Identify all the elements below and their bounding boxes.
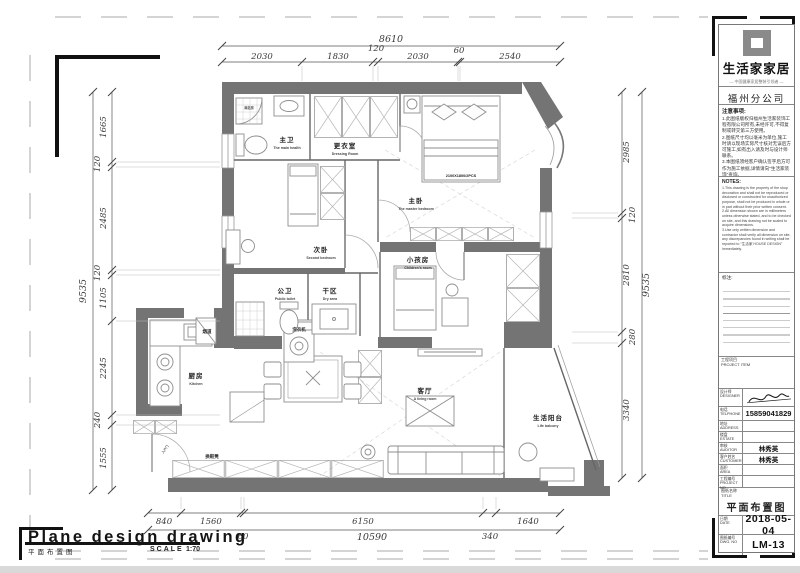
row-label: 地址 ADDRESS bbox=[719, 421, 743, 431]
dwg-no-value: LM-13 bbox=[743, 535, 794, 555]
remarks-ruled-lines bbox=[723, 285, 790, 349]
dim-bottom-seg: 1560 bbox=[200, 517, 222, 527]
room-label-kitchen: 厨房 bbox=[189, 371, 204, 380]
dim-left-seg: 2485 bbox=[99, 207, 109, 230]
dim-right-seg: 2985 bbox=[622, 141, 632, 164]
dim-top-seg: 2030 bbox=[406, 52, 429, 62]
dim-bottom-seg: 840 bbox=[156, 517, 173, 527]
row-label: 面积 AREA bbox=[719, 465, 743, 475]
dim-bottom-seg: 6150 bbox=[352, 517, 374, 527]
dwg-no-label: 图纸编号 DWG. NO bbox=[719, 535, 743, 555]
room-label-living-en: A living room bbox=[414, 397, 437, 401]
drawing-title-underline bbox=[25, 542, 200, 545]
notes-cn-body: 1.此图纸版权归福州生活家装饰工程有限公司所有,未经许可,不得复制或转交第三方使… bbox=[719, 115, 794, 177]
dim-top-seg: 120 bbox=[368, 44, 385, 54]
room-label-second-en: Second bedroom bbox=[306, 256, 335, 260]
entry-door-label: 入户门 bbox=[159, 444, 169, 456]
project-label: 工程项目 PROJECT ITEM bbox=[719, 357, 794, 369]
scale-label: SCALE bbox=[150, 546, 184, 553]
branch-name: 福州分公司 bbox=[719, 87, 794, 105]
phone-value: 15859041829 bbox=[743, 407, 794, 420]
dim-top-seg: 60 bbox=[454, 46, 465, 56]
date-label: 日期 DATE bbox=[719, 516, 743, 534]
dim-left-seg: 1555 bbox=[99, 447, 109, 469]
room-label-public-bath: 公卫 bbox=[278, 287, 293, 295]
row-value bbox=[743, 432, 794, 442]
dim-left-total: 9535 bbox=[78, 279, 89, 303]
row-value: 林秀英 bbox=[743, 454, 794, 464]
row-label: 审核 AUDITOR bbox=[719, 443, 743, 453]
shoe-bench-label: 换鞋凳 bbox=[205, 453, 219, 460]
dim-top-seg: 2030 bbox=[250, 52, 273, 62]
room-label-children: 小孩房 bbox=[406, 255, 430, 264]
floor-plan-svg: 8610 2030 1830 120 2030 60 2540 9535 166… bbox=[0, 0, 800, 573]
dim-bottom-total: 10590 bbox=[357, 532, 387, 543]
drawing-title-cn: 平面布置图 bbox=[28, 546, 76, 556]
room-label-balcony: 生活阳台 bbox=[533, 413, 563, 422]
sheet-edge bbox=[0, 566, 800, 573]
scale-value: 1:70 bbox=[186, 546, 200, 553]
room-label-master-en: The master bedroom bbox=[398, 207, 434, 211]
room-label-master-bath: 主卫 bbox=[280, 135, 295, 144]
dim-top-seg: 2540 bbox=[498, 52, 521, 62]
dim-bottom-seg: 1640 bbox=[517, 517, 539, 527]
room-label-children-en: Children's room bbox=[404, 266, 431, 270]
row-value bbox=[743, 465, 794, 475]
room-label-second: 次卧 bbox=[314, 245, 329, 254]
row-value bbox=[743, 421, 794, 431]
room-label-kitchen-en: Kitchen bbox=[189, 382, 202, 386]
phone-label: 电话 TELPHONE bbox=[719, 407, 743, 420]
washer-label: 洗衣机 bbox=[292, 326, 306, 333]
room-label-master: 主卧 bbox=[409, 196, 424, 205]
dim-right-seg: 120 bbox=[628, 206, 638, 223]
date-value: 2018-05-04 bbox=[743, 516, 794, 534]
brand-tagline: — 中国健康家居整装引领者 — bbox=[719, 79, 794, 85]
dim-right-seg: 280 bbox=[628, 328, 638, 346]
room-label-master-bath-en: The main health bbox=[273, 146, 300, 150]
bed-spec-label: 2100X1800/2PCS bbox=[446, 174, 477, 178]
row-label: 客户姓名 CUSTOMER bbox=[719, 454, 743, 464]
room-label-dry-area-en: Dry area bbox=[323, 297, 338, 301]
brand-name: 生活家家居 bbox=[719, 58, 794, 77]
room-label-dressing-en: Dressing Room bbox=[332, 152, 359, 156]
dim-left-seg: 1665 bbox=[99, 116, 109, 138]
remarks-label: 标注: bbox=[719, 273, 794, 281]
flue-label: 烟道 bbox=[203, 328, 212, 335]
notes-en-title: NOTES: bbox=[719, 177, 794, 185]
dim-top-seg: 1830 bbox=[327, 52, 349, 62]
sheet-title-label: 图纸名称 TITLE bbox=[719, 488, 794, 499]
room-label-public-bath-en: Public toilet bbox=[275, 297, 296, 301]
room-label-balcony-en: Life balcony bbox=[538, 424, 559, 428]
notes-cn-title: 注意事项: bbox=[719, 105, 794, 115]
designer-label: 设计师 DESIGNER bbox=[719, 389, 743, 406]
dim-left-seg: 2245 bbox=[99, 357, 109, 380]
room-label-dressing: 更衣室 bbox=[334, 141, 357, 150]
row-label: 工程编号 PROJECT NO. bbox=[719, 476, 743, 487]
dim-left-seg: 120 bbox=[93, 264, 103, 281]
room-label-dry-area: 干区 bbox=[323, 287, 338, 295]
dim-bottom-seg: 340 bbox=[482, 532, 499, 542]
dim-left-seg: 120 bbox=[93, 155, 103, 172]
dim-right-total: 9535 bbox=[641, 273, 652, 297]
dim-left-seg: 240 bbox=[93, 411, 103, 429]
title-block: 生活家家居 — 中国健康家居整装引领者 — 福州分公司 注意事项: 1.此图纸版… bbox=[718, 24, 795, 553]
room-label-living: 客厅 bbox=[417, 386, 433, 395]
balcony-rail bbox=[558, 345, 600, 467]
notes-en-body: 1.This drawing is the property of the sh… bbox=[719, 185, 794, 252]
sheet-title-value: 平面布置图 bbox=[719, 499, 794, 514]
dim-left-seg: 1105 bbox=[99, 287, 109, 309]
row-value: 林秀英 bbox=[743, 443, 794, 453]
row-label: 楼盘 ESTATE bbox=[719, 432, 743, 442]
dim-right-seg: 2810 bbox=[622, 264, 632, 287]
shower-label: 淋浴房 bbox=[244, 105, 254, 110]
row-value bbox=[743, 476, 794, 487]
designer-signature bbox=[743, 389, 794, 406]
dim-right-seg: 3340 bbox=[622, 399, 632, 421]
brand-logo-icon bbox=[743, 30, 771, 56]
